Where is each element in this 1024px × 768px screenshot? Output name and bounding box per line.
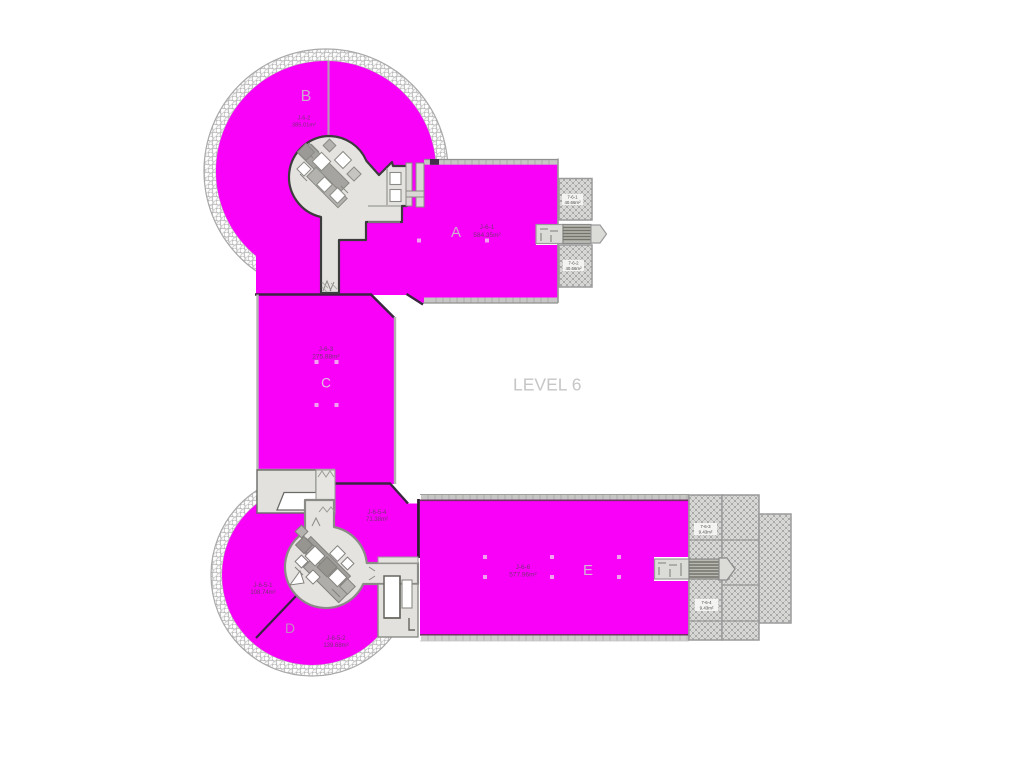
svg-text:J-6-3: J-6-3 xyxy=(319,346,334,353)
svg-text:A: A xyxy=(451,224,461,241)
svg-text:7-6-2: 7-6-2 xyxy=(568,261,579,266)
svg-text:9.43m²: 9.43m² xyxy=(699,530,713,535)
svg-text:J-6-5-4: J-6-5-4 xyxy=(367,510,387,516)
svg-text:J-6-1: J-6-1 xyxy=(480,224,495,231)
svg-text:584.35m²: 584.35m² xyxy=(473,232,501,239)
svg-text:577.96m²: 577.96m² xyxy=(509,572,537,579)
svg-text:J-6-5-1: J-6-5-1 xyxy=(253,583,273,589)
svg-text:7-6-3: 7-6-3 xyxy=(700,524,711,529)
svg-text:7-6-1: 7-6-1 xyxy=(567,195,578,200)
svg-text:C: C xyxy=(321,376,331,391)
svg-text:385.01m²: 385.01m² xyxy=(292,123,316,129)
svg-text:D: D xyxy=(285,620,295,636)
svg-text:9.43m²: 9.43m² xyxy=(700,606,714,611)
svg-text:J-6-5-2: J-6-5-2 xyxy=(326,636,346,642)
svg-text:7-6-4: 7-6-4 xyxy=(701,600,712,605)
svg-text:71.38m²: 71.38m² xyxy=(366,517,388,523)
svg-text:LEVEL 6: LEVEL 6 xyxy=(513,375,581,395)
svg-text:40.66m²: 40.66m² xyxy=(564,200,581,205)
svg-text:E: E xyxy=(583,562,593,579)
svg-text:139.68m²: 139.68m² xyxy=(323,643,348,649)
svg-text:J-6-6: J-6-6 xyxy=(516,564,531,571)
svg-text:J-6-2: J-6-2 xyxy=(298,116,311,122)
svg-text:108.74m²: 108.74m² xyxy=(250,590,275,596)
svg-text:B: B xyxy=(301,88,312,105)
svg-text:40.66m²: 40.66m² xyxy=(565,266,582,271)
svg-text:275.88m²: 275.88m² xyxy=(312,354,340,361)
